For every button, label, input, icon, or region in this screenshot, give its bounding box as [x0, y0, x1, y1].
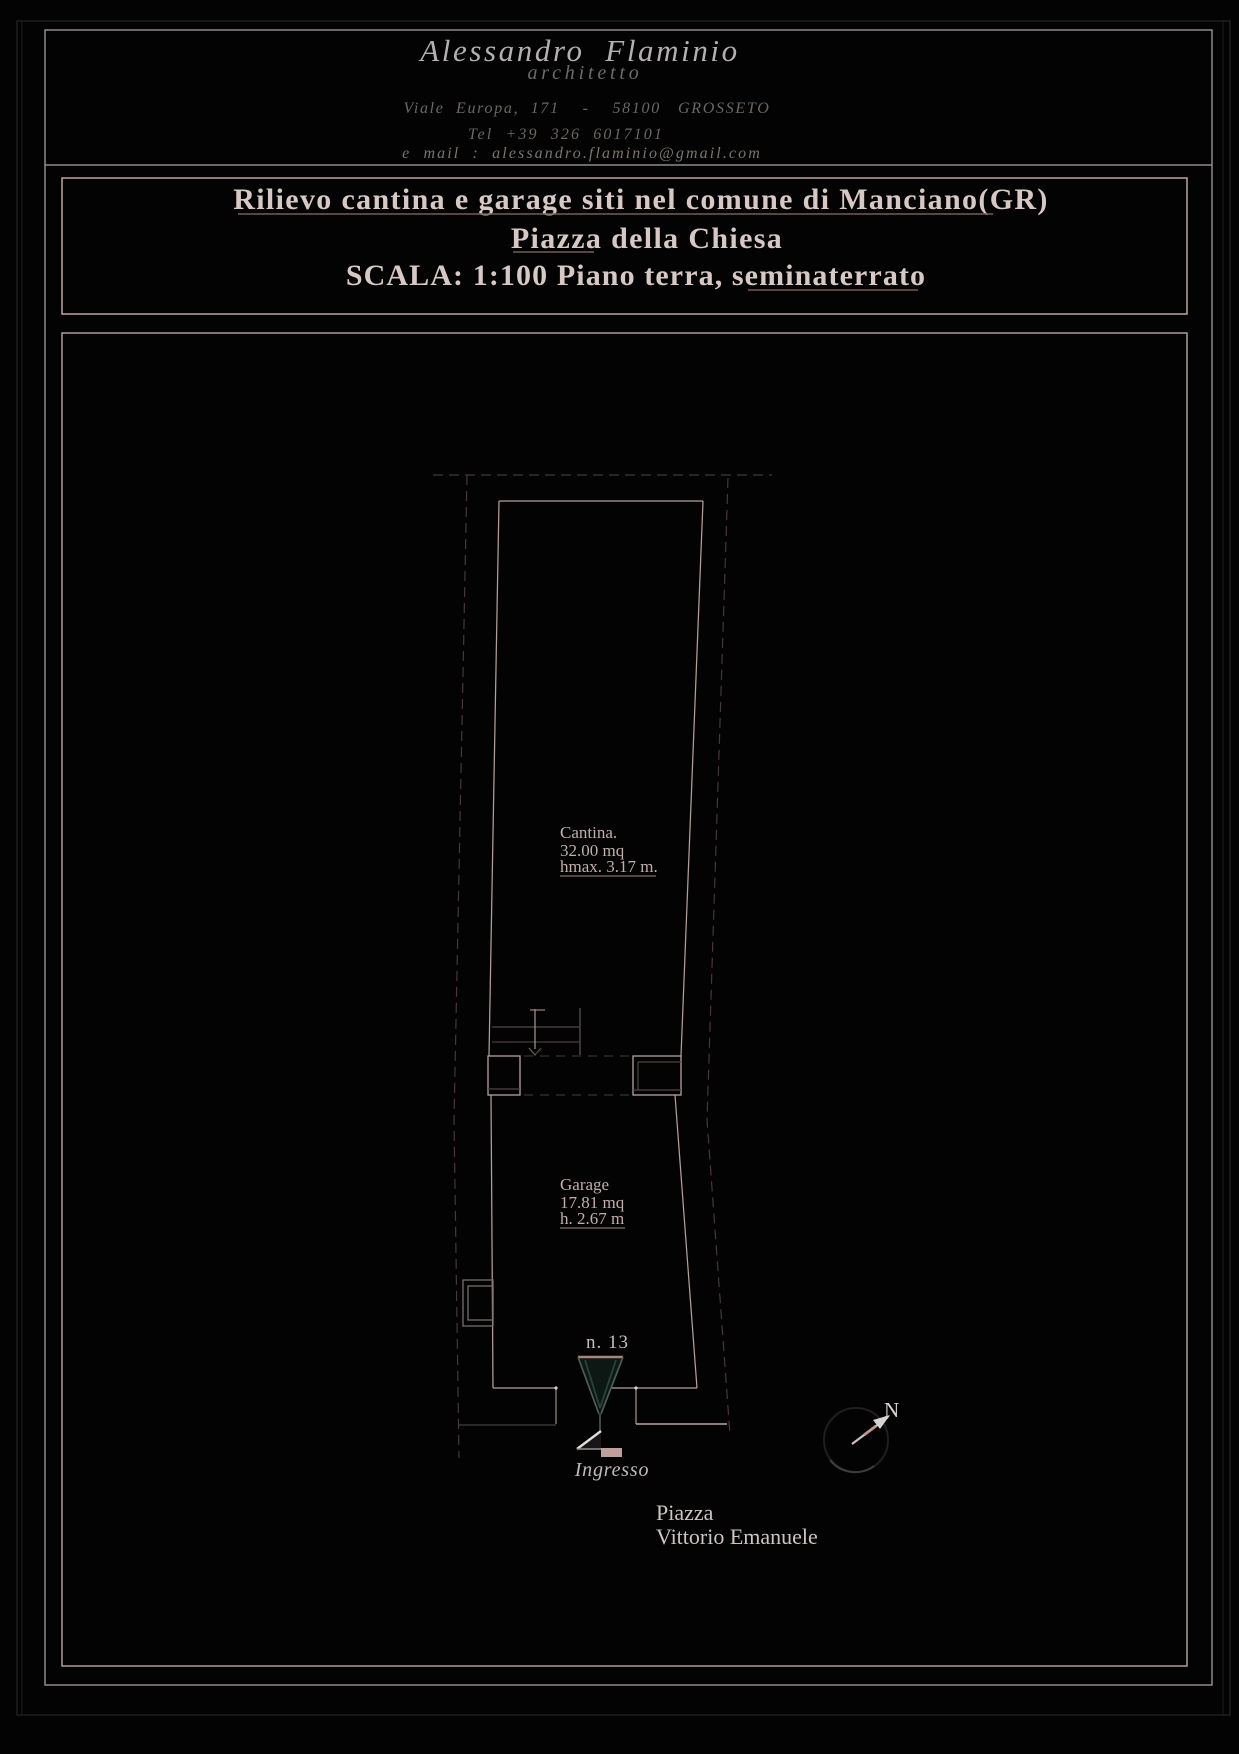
svg-text:Ingresso: Ingresso — [574, 1459, 650, 1481]
svg-text:h. 2.67 m: h. 2.67 m — [560, 1209, 624, 1228]
svg-text:e mail : alessandro.flamini: e mail : alessandro.flaminio@gmail.com — [402, 145, 762, 162]
svg-text:Tel +39 326 6017101: Tel +39 326 6017101 — [468, 126, 664, 143]
svg-text:N: N — [884, 1398, 899, 1422]
svg-text:Vittorio Emanuele: Vittorio Emanuele — [656, 1524, 818, 1549]
svg-text:Rilievo cantina e garage siti: Rilievo cantina e garage siti nel comune… — [233, 183, 1049, 216]
svg-text:hmax. 3.17 m.: hmax. 3.17 m. — [560, 857, 658, 876]
svg-text:n. 13: n. 13 — [586, 1332, 629, 1353]
svg-text:Cantina.: Cantina. — [560, 823, 617, 842]
svg-text:Piazza della Chiesa: Piazza della Chiesa — [511, 222, 783, 255]
svg-text:SCALA: 1:100 Piano terra, semi: SCALA: 1:100 Piano terra, seminaterrato — [346, 259, 926, 292]
svg-text:Viale Europa, 171 - 58: Viale Europa, 171 - 58100 GROSSETO — [404, 100, 771, 117]
svg-text:Garage: Garage — [560, 1175, 609, 1194]
svg-text:architetto: architetto — [527, 62, 642, 84]
svg-text:Piazza: Piazza — [656, 1500, 714, 1525]
